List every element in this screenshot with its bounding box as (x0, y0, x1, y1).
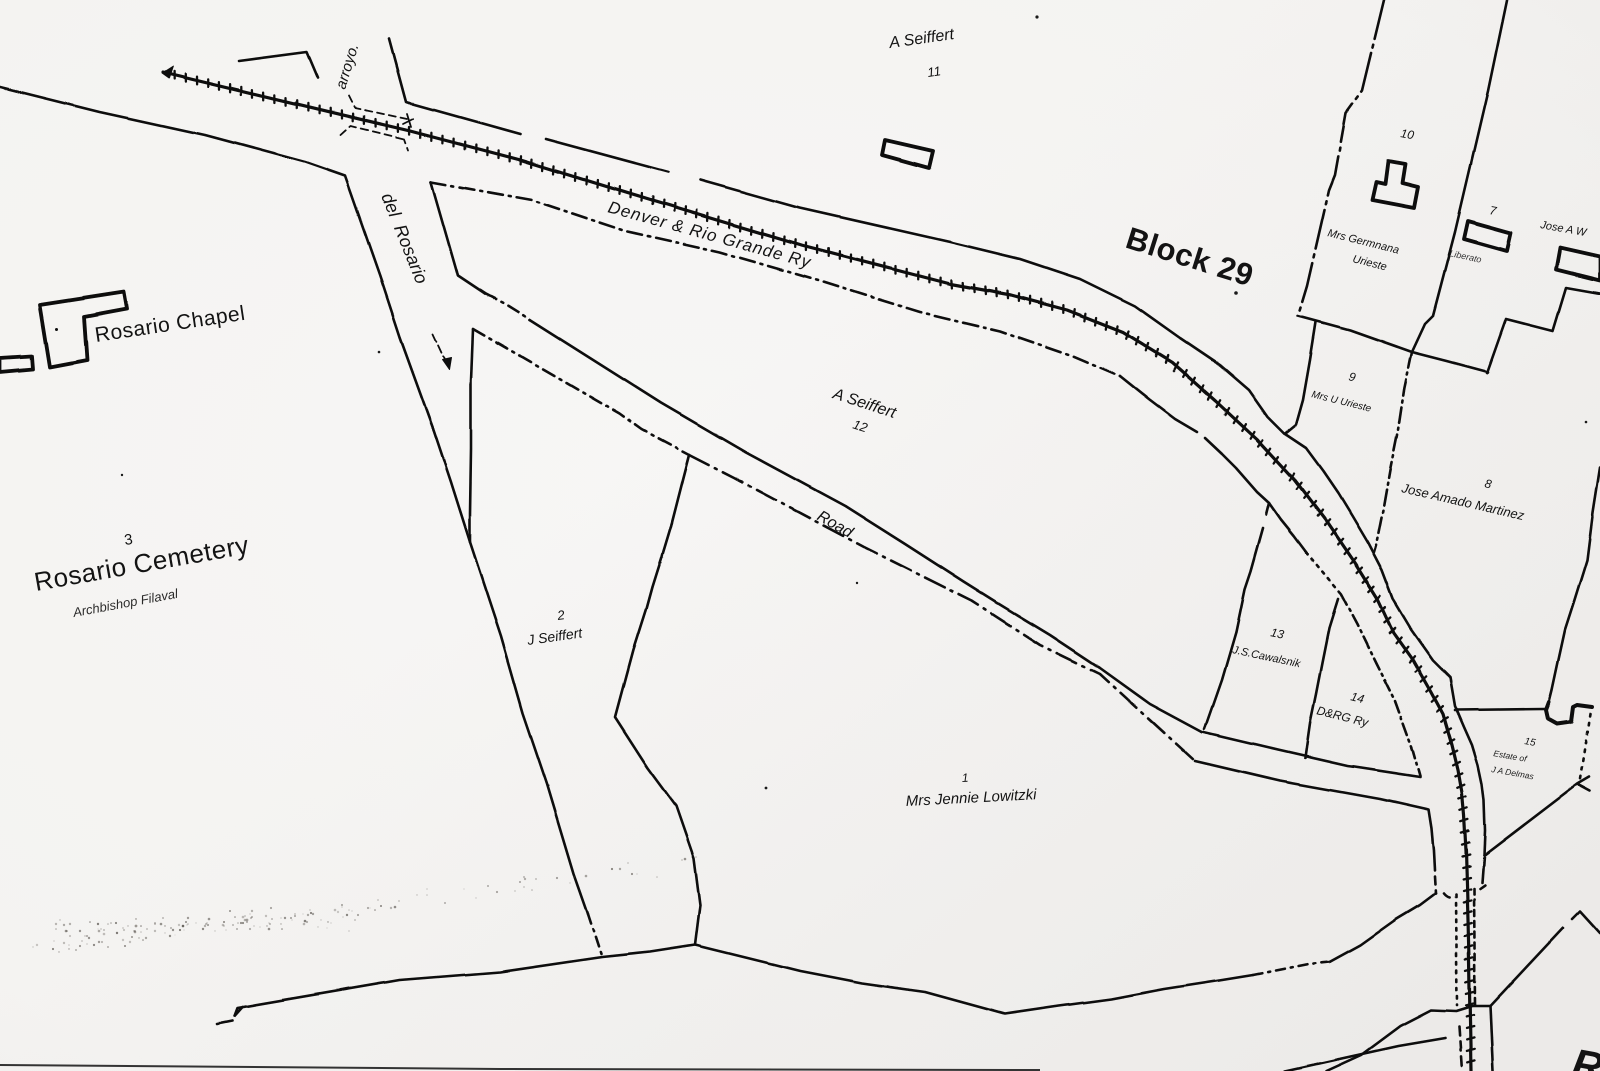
svg-text:10: 10 (1399, 126, 1415, 142)
svg-text:11: 11 (926, 63, 941, 80)
svg-text:1: 1 (961, 771, 968, 785)
